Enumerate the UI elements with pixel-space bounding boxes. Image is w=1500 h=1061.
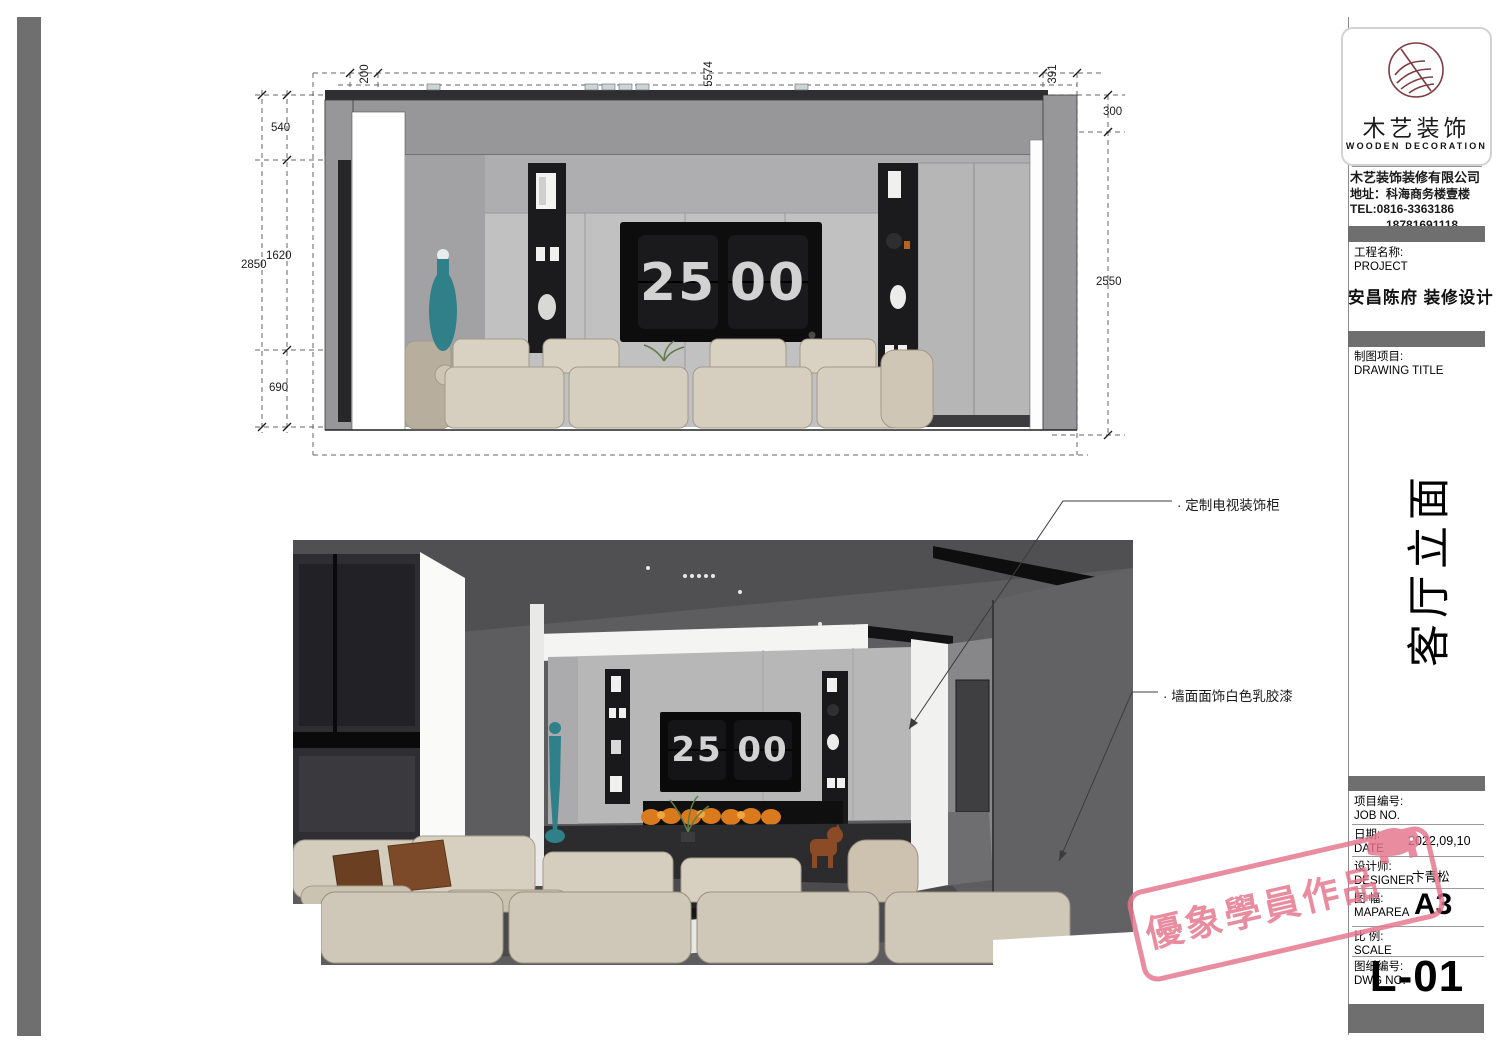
dim-top-right: 391 (1047, 55, 1059, 93)
right-wall (993, 568, 1133, 942)
door (956, 680, 989, 812)
brand-name-en: WOODEN DECORATION (1343, 141, 1490, 151)
field-designer-en: DESIGNER (1354, 874, 1414, 888)
dim-right-height: 2550 (1096, 276, 1122, 288)
display-cabinet-left (528, 163, 566, 353)
company-address: 地址：科海商务楼壹楼 (1350, 187, 1488, 203)
drawing-title-label: 制图项目: DRAWING TITLE (1354, 350, 1443, 378)
field-separator (1352, 824, 1484, 825)
separator-bar (1348, 331, 1485, 347)
project-label-cn: 工程名称: (1354, 246, 1408, 260)
field-job-no: 项目编号: JOB NO. (1354, 795, 1403, 823)
titleblock-divider (1348, 17, 1349, 1035)
flip-clock-hours: 25 (638, 237, 718, 329)
logo-card: 木艺装饰 WOODEN DECORATION (1341, 27, 1492, 166)
field-maparea-cn: 图 幅: (1354, 892, 1409, 906)
flip-clock-minutes: 00 (728, 237, 808, 329)
field-separator (1352, 926, 1484, 927)
dim-top-offset: 200 (359, 55, 371, 93)
bottom-bar (1348, 1004, 1484, 1033)
company-tel: TEL:0816-3363186 (1350, 202, 1488, 218)
company-info: 木艺装饰装修有限公司 地址：科海商务楼壹楼 TEL:0816-3363186 1… (1350, 170, 1488, 234)
field-designer: 设计师: DESIGNER (1354, 860, 1414, 888)
field-maparea: 图 幅: MAPAREA (1354, 892, 1409, 920)
field-maparea-en: MAPAREA (1354, 906, 1409, 920)
drawing-title-vertical: 客厅立面 (1395, 477, 1439, 667)
field-date: 日期: DATE (1354, 828, 1384, 856)
field-designer-cn: 设计师: (1354, 860, 1414, 874)
niche-left (605, 669, 630, 804)
separator-bar (1348, 226, 1485, 242)
logo-icon (1381, 35, 1451, 105)
field-job-no-cn: 项目编号: (1354, 795, 1403, 809)
drawing-label-en: DRAWING TITLE (1354, 364, 1443, 378)
dim-left-seg1: 540 (271, 122, 290, 134)
field-date-en: DATE (1354, 842, 1384, 856)
field-maparea-value: A3 (1414, 888, 1452, 922)
annotation-tv-cabinet: · 定制电视装饰柜 (1177, 494, 1280, 514)
window (293, 554, 423, 844)
flip-clock-minutes-perspective: 00 (734, 720, 792, 780)
field-separator (1352, 856, 1484, 857)
company-name: 木艺装饰装修有限公司 (1350, 170, 1488, 187)
logo-underline (1352, 166, 1482, 167)
field-scale-cn: 比 例: (1354, 930, 1392, 944)
dim-top-width: 5574 (703, 55, 715, 93)
dim-left-total: 2850 (241, 259, 267, 271)
dim-left-seg2: 1620 (266, 250, 292, 262)
field-job-no-en: JOB NO. (1354, 809, 1403, 823)
drawing-sheet: 200 5574 391 540 1620 2850 690 300 2550 … (0, 0, 1500, 1061)
project-label-en: PROJECT (1354, 260, 1408, 274)
drawing-label-cn: 制图项目: (1354, 350, 1443, 364)
project-name: 安昌陈府 装修设计 (1348, 284, 1485, 308)
flip-clock-hours-perspective: 25 (668, 720, 726, 780)
brand-name-cn: 木艺装饰 (1343, 109, 1490, 143)
field-date-cn: 日期: (1354, 828, 1384, 842)
left-edge-bar (17, 17, 41, 1036)
project-label: 工程名称: PROJECT (1354, 246, 1408, 274)
fireplace (641, 801, 843, 828)
sheet-number: L-01 (1350, 952, 1484, 1002)
dim-right-drop: 300 (1103, 106, 1122, 118)
field-designer-value: 卞青松 (1412, 866, 1450, 885)
annotation-wall-paint: · 墙面面饰白色乳胶漆 (1163, 685, 1293, 705)
field-date-value: 2022,09,10 (1408, 834, 1471, 848)
separator-bar (1348, 776, 1485, 791)
dim-left-seg3: 690 (269, 382, 288, 394)
